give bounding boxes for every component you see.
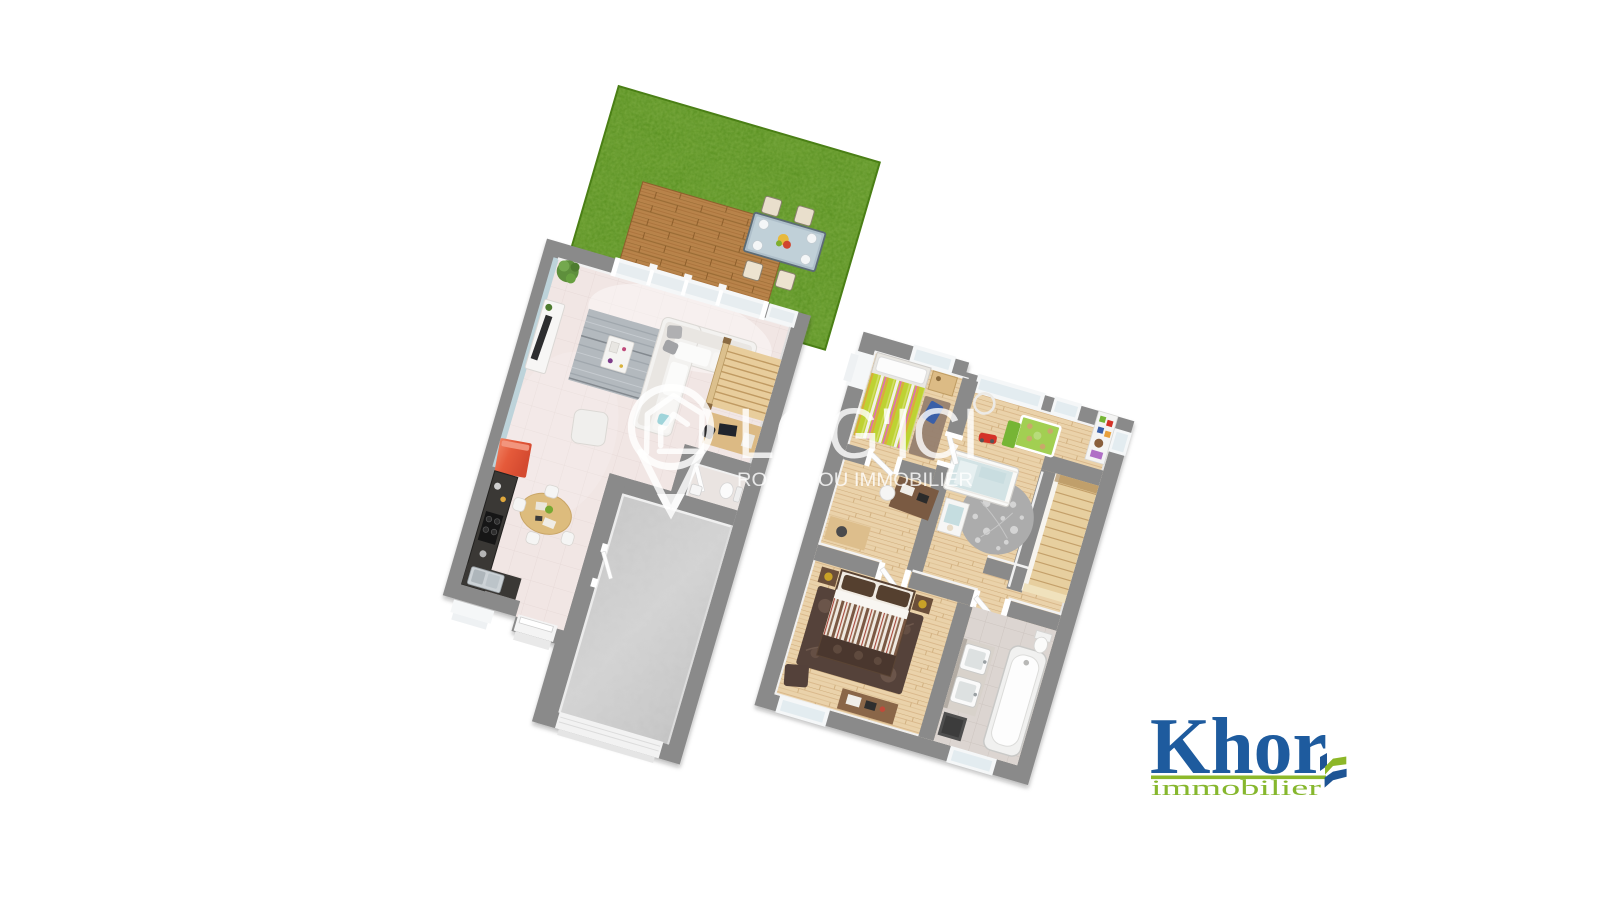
svg-text:OU IMMOBILIER: OU IMMOBILIER	[818, 469, 973, 491]
svg-text:immobilier: immobilier	[1151, 775, 1322, 800]
svg-text:LOG'ICI: LOG'ICI	[737, 395, 980, 474]
svg-text:RO: RO	[737, 469, 767, 491]
